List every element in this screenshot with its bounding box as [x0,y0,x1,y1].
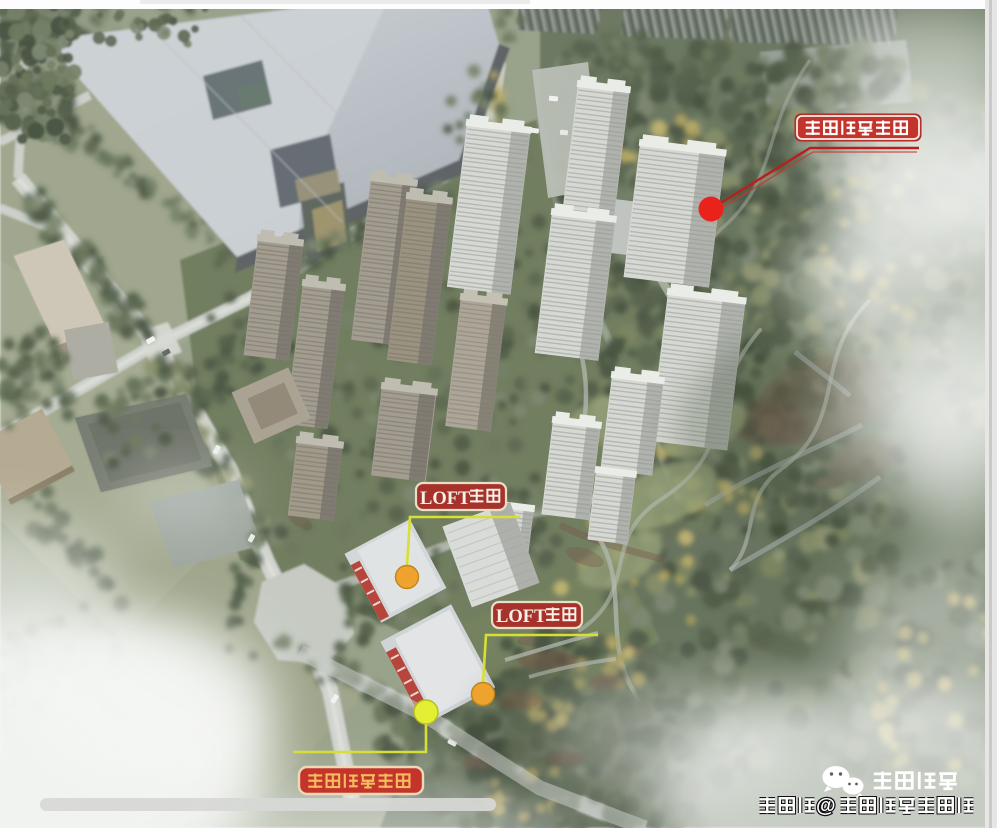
svg-text:LOFT: LOFT [496,607,547,627]
svg-text:@: @ [816,795,836,817]
svg-text:LOFT: LOFT [420,489,471,509]
